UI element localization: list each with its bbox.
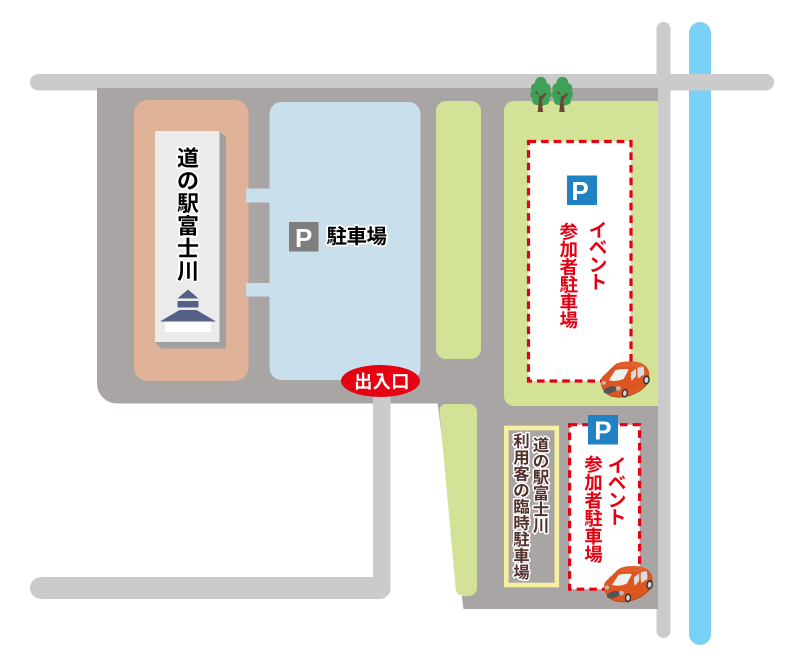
- svg-text:P: P: [594, 416, 611, 446]
- svg-text:P: P: [295, 223, 312, 253]
- svg-text:P: P: [571, 176, 588, 206]
